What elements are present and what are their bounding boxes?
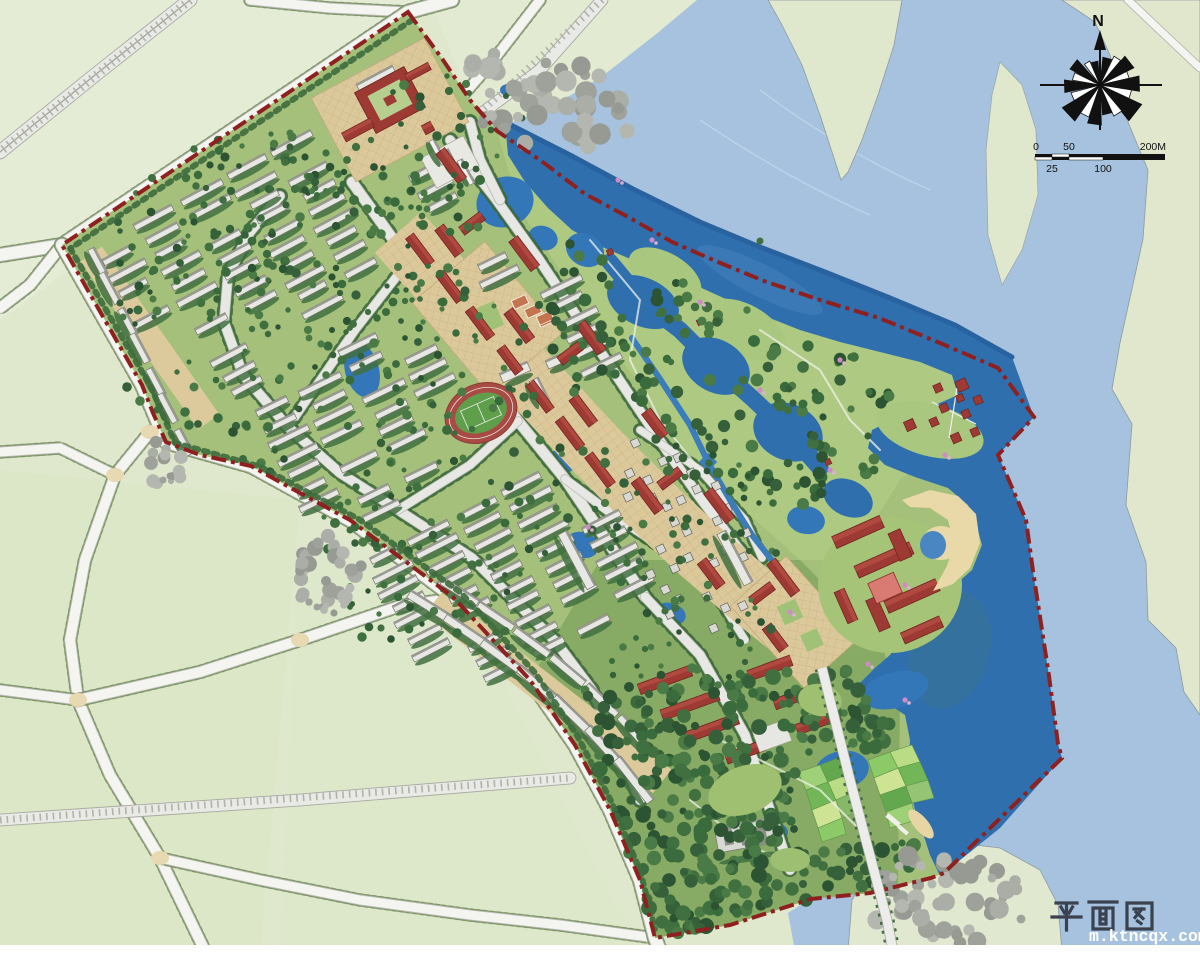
svg-text:200M: 200M xyxy=(1140,141,1166,153)
svg-text:50: 50 xyxy=(1063,141,1075,153)
svg-text:100: 100 xyxy=(1094,163,1112,175)
svg-text:m.ktncqx.com: m.ktncqx.com xyxy=(1089,927,1200,946)
svg-text:0: 0 xyxy=(1033,141,1039,153)
svg-text:N: N xyxy=(1092,13,1104,30)
svg-text:25: 25 xyxy=(1046,163,1058,175)
